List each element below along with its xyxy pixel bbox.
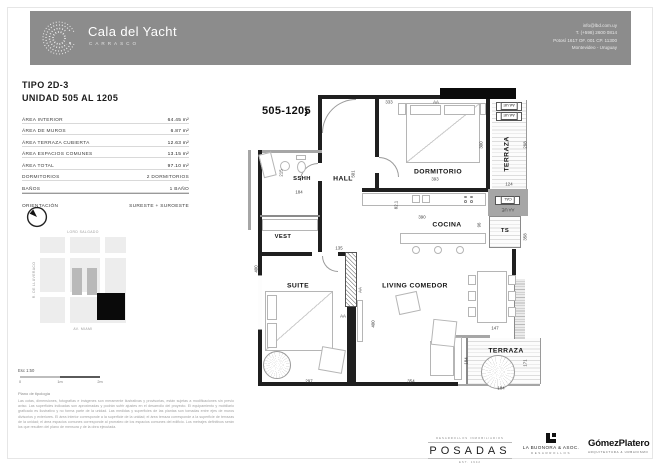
dimension-label: 135: [335, 246, 342, 251]
area-value: 13.15 m²: [168, 152, 189, 157]
brand-name: Cala del Yacht: [88, 24, 177, 39]
equipment-box-label: AA UE: [500, 112, 517, 120]
dimension-label: 82.1: [394, 201, 399, 209]
area-table: ÁREA INTERIOR64.45 m² ÁREA DE MUROS6.87 …: [22, 112, 189, 170]
detail-value: 2 DORMITORIOS: [147, 175, 189, 180]
scale-bar: [60, 376, 100, 378]
map-street-label-top: LORD SALGADO: [67, 230, 99, 234]
floor-plan: SSHHHALLDORMITORIOCOCINAVESTSUITELIVING …: [248, 85, 548, 395]
area-label: ÁREA INTERIOR: [22, 118, 63, 123]
dimension-label: 393: [431, 177, 438, 182]
dimension-label: AA UE: [502, 208, 515, 213]
contact-email: info@lbd.com.uy: [553, 22, 617, 29]
map-building: [87, 268, 97, 295]
scale-label: Esc 1:50: [18, 368, 34, 373]
dimension-label: AA: [433, 100, 439, 105]
dimension-label: 124: [505, 182, 512, 187]
disclaimer-line: Las cotas, dimensiones, fotografías e im…: [18, 399, 191, 403]
table-row: DORMITORIOS2 DORMITORIOS: [22, 169, 189, 181]
map-street: [65, 237, 70, 323]
plan-annotations: SSHHHALLDORMITORIOCOCINAVESTSUITELIVING …: [248, 85, 548, 395]
dimension-label: 354: [407, 379, 414, 384]
posadas-tagline: DESARROLLOS INMOBILIARIOS: [428, 436, 512, 443]
dimension-label: 300: [479, 141, 484, 148]
room-label-terraza: TERRAZA: [504, 136, 511, 171]
dimension-label: 184: [497, 386, 504, 391]
room-label-cocina: COCINA: [432, 222, 461, 229]
gomezplatero-wordmark: GómezPlatero: [588, 438, 650, 449]
map-street: [40, 253, 126, 258]
buonora-wordmark: LA BUONORA & ASOC.: [522, 445, 580, 450]
table-row: ÁREA DE MUROS6.87 m²: [22, 124, 189, 136]
dimension-label: AA: [340, 314, 346, 319]
map-project-site: [97, 293, 125, 320]
brand-location: CARRASCO: [89, 41, 139, 46]
header-band: Cala del Yacht CARRASCO info@lbd.com.uy …: [30, 11, 631, 65]
dimension-label: 400: [254, 265, 259, 272]
dimension-label: 215: [279, 169, 284, 176]
dimension-label: 501: [351, 170, 356, 177]
buonora-mark-icon: [522, 433, 580, 443]
dimension-label: 96: [477, 223, 482, 228]
details-table: DORMITORIOS2 DORMITORIOS BAÑOS1 BAÑO ORI…: [22, 169, 189, 209]
posadas-wordmark: POSADAS: [428, 445, 512, 457]
contact-city: Montevideo - Uruguay: [553, 44, 617, 51]
scale-bar: [20, 376, 60, 378]
area-value: 6.87 m²: [171, 129, 189, 134]
dimension-label: AA: [358, 287, 363, 293]
table-row: ÁREA TOTAL97.10 m²: [22, 158, 189, 170]
table-row: BAÑOS1 BAÑO: [22, 181, 189, 193]
table-row: ÁREA ESPACIOS COMUNES13.15 m²: [22, 147, 189, 159]
area-label: ÁREA TOTAL: [22, 164, 54, 169]
map-building: [72, 268, 82, 295]
room-label-dormitorio: DORMITORIO: [414, 169, 462, 176]
scale-tick: 2m: [97, 380, 102, 384]
map-street-label-left: R. DE LLUVERACO: [32, 262, 36, 299]
buonora-logo: LA BUONORA & ASOC. DESARROLLOS: [522, 433, 580, 455]
equipment-box-label: AA UE: [500, 102, 517, 110]
area-value: 64.45 m²: [168, 118, 189, 123]
unit-number-title: UNIDAD 505 AL 1205: [22, 93, 118, 103]
contact-phone: T. (+598) 2600 0814: [553, 29, 617, 36]
area-value: 97.10 m²: [168, 164, 189, 169]
contact-block: info@lbd.com.uy T. (+598) 2600 0814 Poto…: [553, 22, 617, 52]
map-street-label-bottom: AV. MIAMI: [73, 327, 92, 331]
room-label-terraza: TERRAZA: [488, 348, 523, 355]
disclaimer-line: la unidad; el área espacios comunes corr…: [23, 420, 192, 424]
contact-address: Potosí 1617 OF. 001 CP. 11300: [553, 37, 617, 44]
room-label-ts: TS: [501, 228, 509, 234]
scale-tick: 1m: [57, 380, 62, 384]
detail-label: BAÑOS: [22, 187, 40, 192]
table-row: ÁREA INTERIOR64.45 m²: [22, 112, 189, 124]
buonora-subline: DESARROLLOS: [522, 451, 580, 455]
posadas-logo: DESARROLLOS INMOBILIARIOS POSADAS EST. 1…: [428, 436, 512, 464]
area-label: ÁREA ESPACIOS COMUNES: [22, 152, 92, 157]
room-label-vest: VEST: [275, 234, 292, 240]
north-compass-icon: [26, 206, 48, 233]
room-label-suite: SUITE: [287, 283, 309, 290]
dimension-label: 147: [491, 326, 498, 331]
dimension-label: 298: [523, 141, 528, 148]
brand-logo-icon: [40, 19, 78, 62]
area-label: ÁREA TERRAZA CUBIERTA: [22, 141, 90, 146]
dimension-label: 333: [385, 100, 392, 105]
map-street: [100, 237, 105, 293]
dimension-label: 297: [305, 379, 312, 384]
plan-caption: Plano de tipología: [18, 391, 50, 396]
floor-plan-sheet: { "header": { "brand": "Cala del Yacht",…: [0, 0, 660, 466]
dimension-label: 171: [523, 359, 528, 366]
dimension-label: 184: [295, 190, 302, 195]
room-label-sshh: SSHH: [293, 176, 311, 182]
site-location-map: [40, 237, 126, 323]
detail-value: 1 BAÑO: [170, 187, 189, 192]
detail-label: DORMITORIOS: [22, 175, 60, 180]
dimension-label: 400: [371, 320, 376, 327]
area-value: 12.63 m²: [168, 141, 189, 146]
scale-tick: 0: [19, 380, 21, 384]
unit-type-title: TIPO 2D-3: [22, 80, 69, 90]
dimension-label: 184: [464, 357, 469, 364]
area-label: ÁREA DE MUROS: [22, 129, 66, 134]
detail-value: SURESTE + SUROESTE: [129, 204, 189, 209]
posadas-subline: EST. 1942: [428, 458, 512, 464]
gomezplatero-subline: ARQUITECTURA & URBANISMO: [588, 450, 650, 454]
dimension-label: 358: [523, 233, 528, 240]
table-row: ÁREA TERRAZA CUBIERTA12.63 m²: [22, 135, 189, 147]
room-label-living-comedor: LIVING COMEDOR: [382, 283, 448, 290]
equipment-box-label: CAL: [501, 196, 515, 204]
gomezplatero-logo: GómezPlatero ARQUITECTURA & URBANISMO: [588, 438, 650, 454]
dimension-label: 390: [418, 215, 425, 220]
legal-disclaimer: Las cotas, dimensiones, fotografías e im…: [18, 399, 234, 430]
